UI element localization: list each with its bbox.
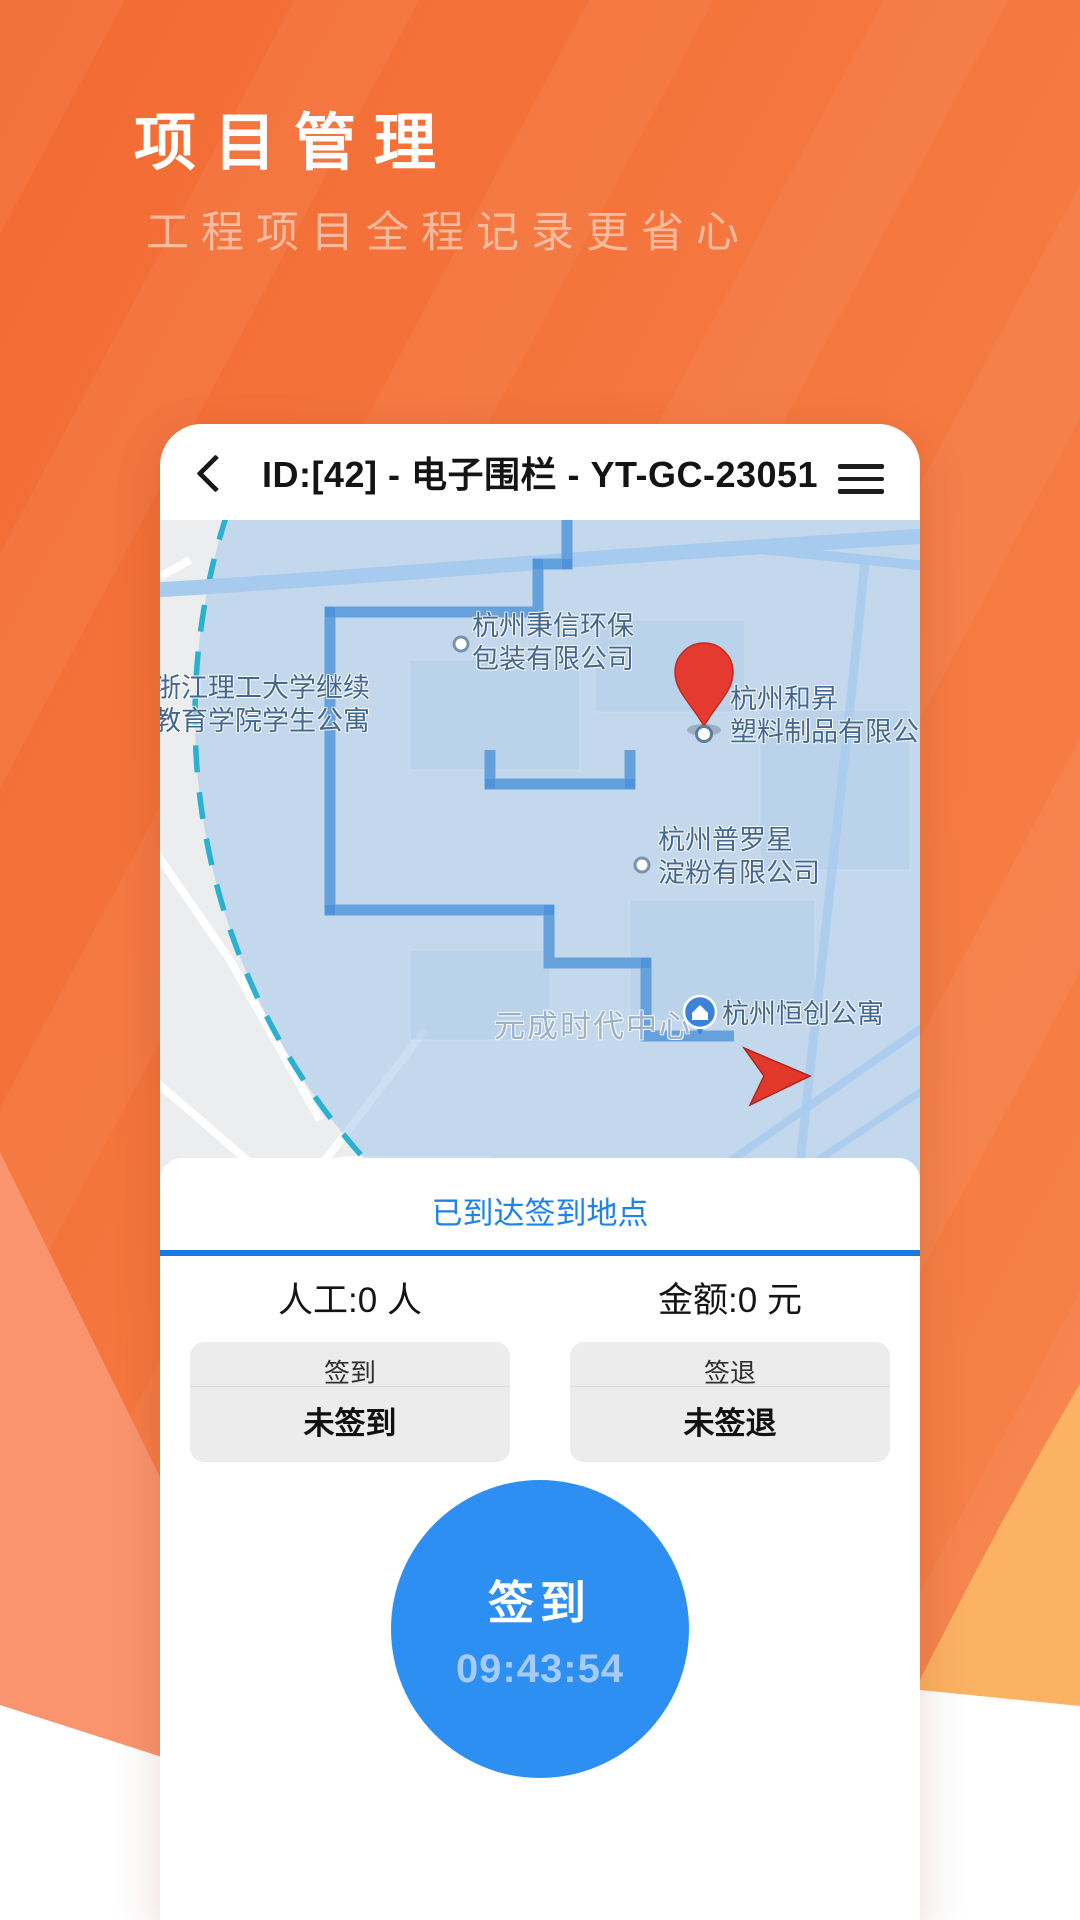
back-button[interactable] — [194, 452, 238, 492]
labor-stat: 人工:0 人 — [160, 1272, 540, 1316]
panel-divider — [160, 1250, 920, 1256]
status-boxes: 签到 未签到 签退 未签退 — [160, 1342, 920, 1462]
salmon-wedge-shape — [0, 1152, 162, 1790]
map-label-puluoxing: 杭州普罗星 淀粉有限公司 — [658, 824, 820, 890]
checkout-box-title: 签退 — [570, 1342, 890, 1385]
arrival-status-text: 已到达签到地点 — [160, 1188, 920, 1228]
map-label-hengchuang: 杭州恒创公寓 — [722, 998, 884, 1031]
page-title: 项目管理 — [134, 92, 454, 182]
checkin-action-time: 09:43:54 — [456, 1647, 624, 1692]
menu-button[interactable] — [834, 454, 896, 496]
checkin-status-box: 签到 未签到 — [190, 1342, 510, 1462]
amber-wedge-shape — [920, 1384, 1080, 1708]
app-header: ID:[42] - 电子围栏 - YT-GC-23051 — [160, 424, 920, 520]
map-label-campus: 浙江理工大学继续 教育学院学生公寓 — [160, 672, 370, 738]
map-label-hesheng: 杭州和昇 塑料制品有限公 — [730, 683, 919, 749]
chevron-left-icon — [196, 454, 234, 492]
checkin-action-label: 签到 — [488, 1567, 592, 1633]
hamburger-icon — [838, 464, 884, 469]
stats-row: 人工:0 人 金额:0 元 — [160, 1272, 920, 1316]
checkout-box-value: 未签退 — [570, 1387, 890, 1443]
app-title: ID:[42] - 电子围栏 - YT-GC-23051 — [160, 446, 920, 498]
checkout-status-box: 签退 未签退 — [570, 1342, 890, 1462]
app-screenshot-card: ID:[42] - 电子围栏 - YT-GC-23051 — [160, 424, 920, 1920]
map-label-yuancheng: 元成时代中心 — [494, 1010, 692, 1043]
amount-stat: 金额:0 元 — [540, 1272, 920, 1316]
page-subtitle: 工程项目全程记录更省心 — [146, 198, 751, 260]
checkin-box-title: 签到 — [190, 1342, 510, 1385]
promo-screen: 项目管理 工程项目全程记录更省心 ID:[42] - 电子围栏 - YT-GC-… — [0, 0, 1080, 1920]
checkin-panel: 已到达签到地点 人工:0 人 金额:0 元 签到 未签到 签退 未签退 — [160, 1158, 920, 1778]
checkin-box-value: 未签到 — [190, 1387, 510, 1443]
map-view[interactable]: 浙江理工大学继续 教育学院学生公寓 杭州秉信环保 包装有限公司 杭州和昇 塑料制… — [160, 520, 920, 1180]
checkin-action-button[interactable]: 签到 09:43:54 — [391, 1480, 689, 1778]
map-label-bingxin: 杭州秉信环保 包装有限公司 — [472, 610, 634, 676]
